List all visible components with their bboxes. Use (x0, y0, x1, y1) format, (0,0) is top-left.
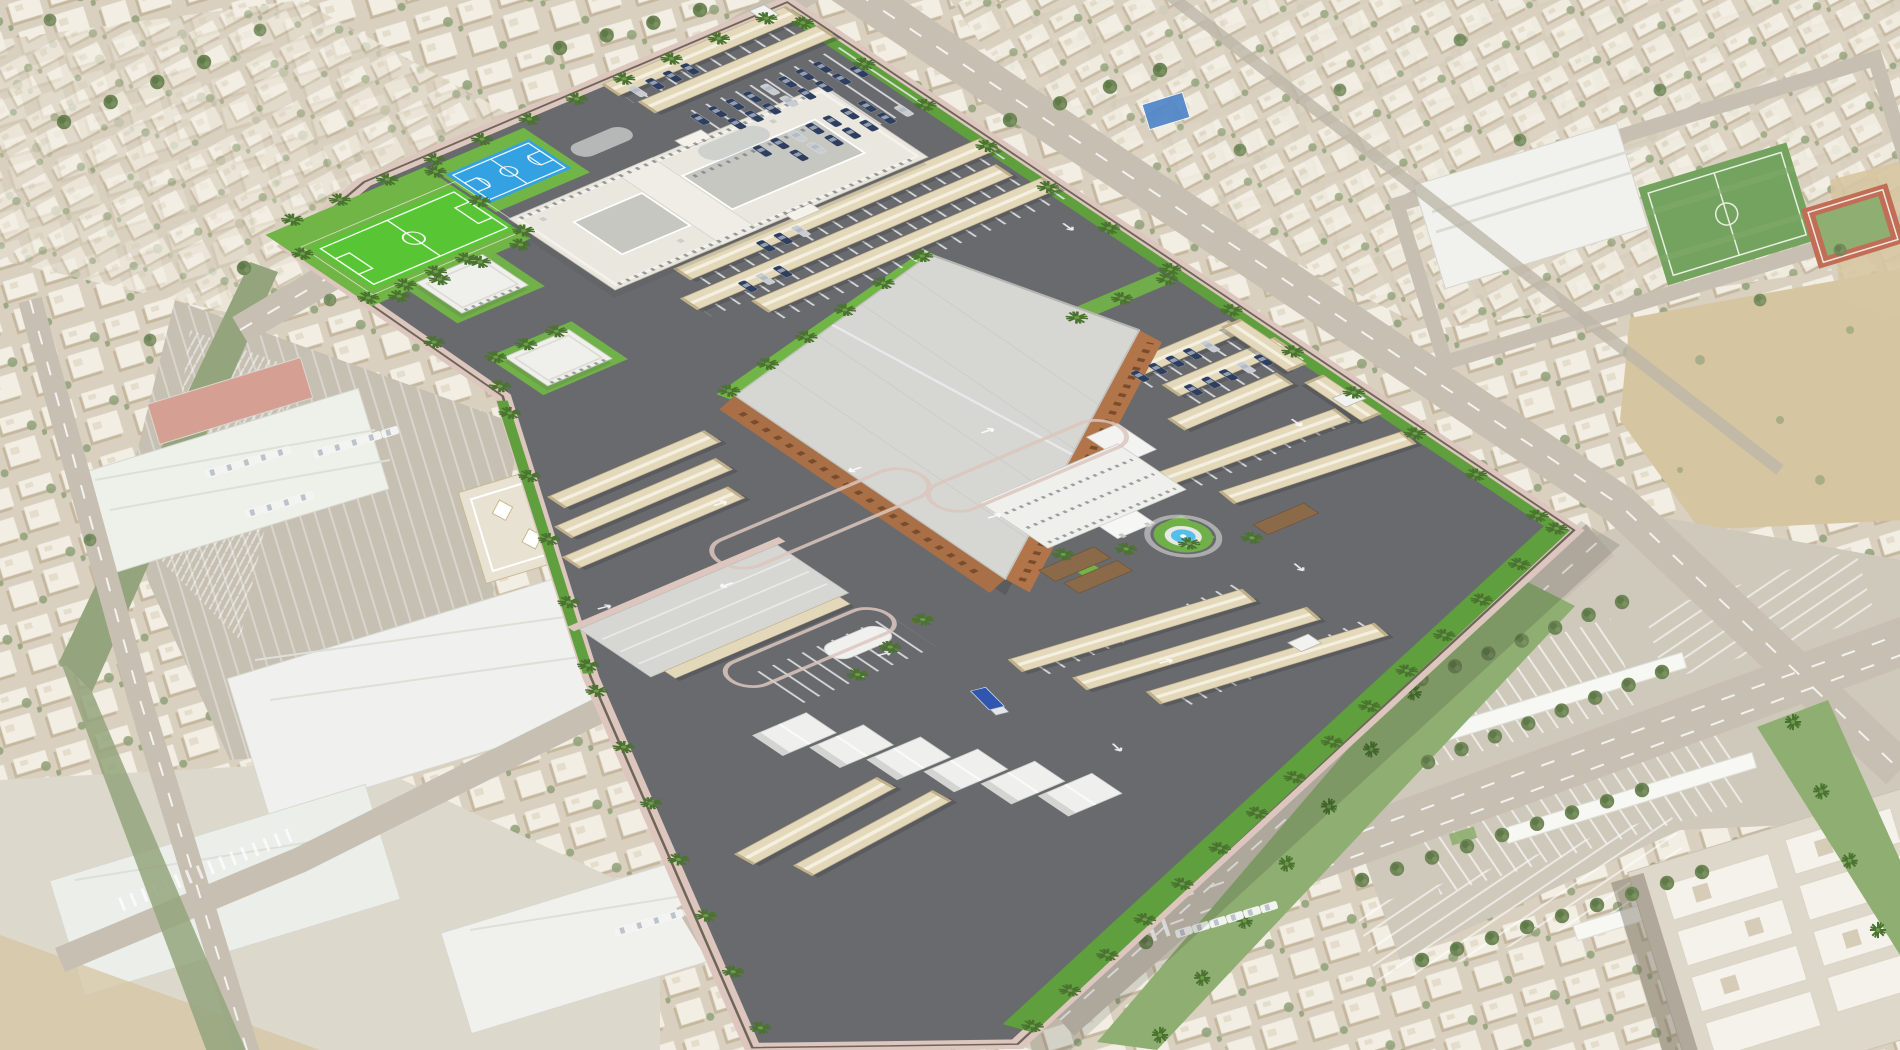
street-tree (1530, 817, 1544, 831)
city-tree (144, 334, 157, 347)
street-tree (1655, 665, 1669, 679)
city-tree (1454, 34, 1467, 47)
street-tree (599, 28, 613, 42)
median-palm (1194, 970, 1210, 986)
street-tree (1153, 63, 1167, 77)
street-tree (1555, 703, 1569, 717)
median-palm (1785, 714, 1801, 730)
street-tree (1485, 931, 1499, 945)
street-tree (1600, 794, 1614, 808)
city-tree (44, 14, 57, 27)
city-tree (84, 534, 97, 547)
street-tree (1590, 898, 1604, 912)
city-tree (254, 24, 267, 37)
street-tree (1635, 783, 1649, 797)
street-tree (553, 41, 567, 55)
street-tree (1615, 595, 1629, 609)
city-tree (1654, 84, 1667, 97)
scene-svg (0, 0, 1900, 1050)
median-palm (1152, 1027, 1168, 1043)
median-palm (1842, 853, 1858, 869)
street-tree (197, 55, 211, 69)
street-tree (1003, 113, 1017, 127)
street-tree (1548, 621, 1562, 635)
street-tree (1415, 953, 1429, 967)
street-tree (1581, 608, 1595, 622)
street-tree (1454, 742, 1468, 756)
street-tree (1625, 887, 1639, 901)
street-tree (1621, 678, 1635, 692)
aerial-render-canvas (0, 0, 1900, 1050)
city-tree (1334, 84, 1347, 97)
street-tree (1660, 876, 1674, 890)
street-tree (1425, 850, 1439, 864)
street-tree (1588, 691, 1602, 705)
median-palm (1279, 856, 1295, 872)
street-tree (1355, 873, 1369, 887)
median-palm (1870, 922, 1886, 938)
street-tree (103, 95, 117, 109)
street-tree (1450, 942, 1464, 956)
street-tree (150, 75, 164, 89)
street-tree (57, 115, 71, 129)
street-tree (1695, 865, 1709, 879)
street-tree (1053, 96, 1067, 110)
street-tree (1103, 79, 1117, 93)
street-tree (646, 15, 660, 29)
street-tree (1521, 716, 1535, 730)
city-tree (1754, 294, 1767, 307)
street-tree (1390, 862, 1404, 876)
street-tree (1421, 755, 1435, 769)
street-tree (1495, 828, 1509, 842)
street-tree (1520, 920, 1534, 934)
median-palm (1813, 783, 1829, 799)
street-tree (1565, 805, 1579, 819)
street-tree (1488, 729, 1502, 743)
street-tree (237, 261, 251, 275)
city-tree (324, 294, 337, 307)
city-tree (1514, 134, 1527, 147)
street-tree (1555, 909, 1569, 923)
city-tree (1234, 144, 1247, 157)
street-tree (693, 3, 707, 17)
street-tree (1460, 839, 1474, 853)
city-tree (1834, 244, 1847, 257)
